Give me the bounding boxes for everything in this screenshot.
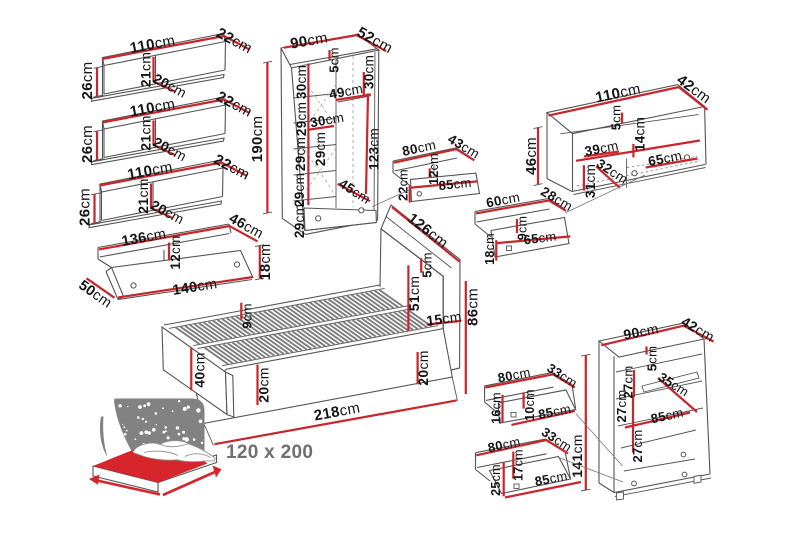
svg-text:190cm: 190cm xyxy=(249,116,266,163)
svg-text:25cm: 25cm xyxy=(489,464,503,496)
svg-text:20cm: 20cm xyxy=(256,367,272,402)
svg-text:5cm: 5cm xyxy=(644,346,659,371)
svg-text:51cm: 51cm xyxy=(406,276,422,311)
svg-text:5cm: 5cm xyxy=(326,47,341,72)
svg-text:18cm: 18cm xyxy=(483,233,497,265)
svg-text:46cm: 46cm xyxy=(523,137,540,175)
svg-text:29cm: 29cm xyxy=(292,173,307,207)
svg-text:29cm: 29cm xyxy=(294,102,309,136)
svg-text:27cm: 27cm xyxy=(630,430,645,463)
svg-text:29cm: 29cm xyxy=(313,132,328,166)
svg-text:16cm: 16cm xyxy=(489,392,503,424)
svg-text:29cm: 29cm xyxy=(293,137,308,171)
svg-text:9cm: 9cm xyxy=(239,303,254,328)
svg-text:26cm: 26cm xyxy=(79,62,96,100)
svg-text:14cm: 14cm xyxy=(632,117,647,151)
svg-text:30cm: 30cm xyxy=(361,55,376,89)
svg-text:29cm: 29cm xyxy=(292,204,307,238)
svg-text:30cm: 30cm xyxy=(294,65,309,99)
svg-text:17cm: 17cm xyxy=(512,449,526,481)
svg-text:27cm: 27cm xyxy=(614,390,629,423)
svg-text:10cm: 10cm xyxy=(523,389,537,421)
svg-text:26cm: 26cm xyxy=(76,188,93,226)
svg-text:22cm: 22cm xyxy=(397,169,411,201)
svg-text:31cm: 31cm xyxy=(583,164,598,198)
svg-text:5cm: 5cm xyxy=(419,252,434,277)
svg-text:120 x 200: 120 x 200 xyxy=(226,442,313,463)
svg-text:20cm: 20cm xyxy=(415,350,431,385)
svg-text:18cm: 18cm xyxy=(258,244,274,281)
svg-text:5cm: 5cm xyxy=(608,105,623,130)
svg-text:86cm: 86cm xyxy=(464,288,481,326)
svg-text:26cm: 26cm xyxy=(79,125,96,163)
svg-text:40cm: 40cm xyxy=(192,352,208,387)
svg-text:123cm: 123cm xyxy=(366,128,381,170)
svg-text:12cm: 12cm xyxy=(168,235,183,269)
svg-text:141cm: 141cm xyxy=(569,434,585,478)
